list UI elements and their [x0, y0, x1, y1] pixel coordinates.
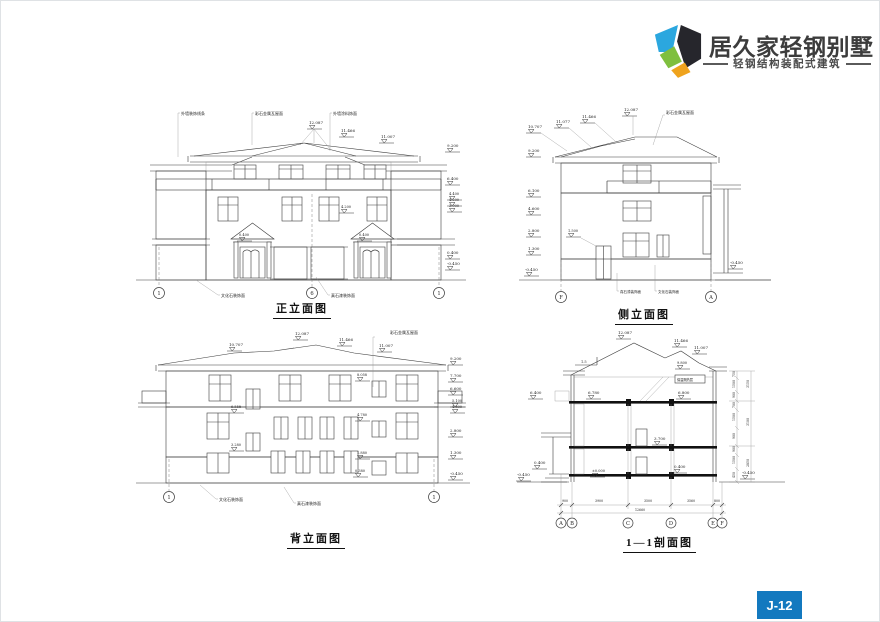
level-label: 11.007 — [694, 345, 708, 350]
dim-label: 3100 — [746, 418, 750, 426]
level-label: -0.450 — [447, 261, 460, 266]
side-elevation-title: 侧立面图 — [615, 306, 673, 325]
level-label: 0.400 — [534, 460, 546, 465]
side-top-note: 彩石金属瓦屋面 — [653, 109, 694, 145]
note-label: 彩石金属瓦屋面 — [666, 109, 694, 115]
level-label: 6.400 — [530, 390, 542, 395]
level-label: 7.700 — [450, 373, 462, 378]
rear-bottom-notes: 文化石装饰面 真石漆装饰面 — [200, 485, 321, 506]
tagline-text: 轻钢结构装配式建筑 — [733, 56, 841, 71]
dim-label: 1500 — [732, 456, 736, 464]
company-tagline: 轻钢结构装配式建筑 — [703, 56, 871, 71]
level-label: 11.007 — [381, 134, 395, 139]
dim-label: 2850 — [746, 459, 750, 467]
level-label: 0.400 — [447, 250, 459, 255]
dim-label: 900 — [732, 446, 736, 452]
dim-label: 900 — [732, 433, 736, 439]
level-label: 1.300 — [450, 450, 462, 455]
level-label: 3.280 — [231, 443, 241, 447]
grid-label: C — [626, 521, 630, 527]
grid-label: E — [711, 521, 715, 527]
level-label: 3.700 — [654, 436, 666, 441]
grid-label: A — [558, 521, 563, 527]
level-label: 0.400 — [239, 233, 249, 237]
level-label: 6.400 — [447, 176, 459, 181]
level-label: 11.007 — [379, 343, 393, 348]
note-label: 保温隔热层 — [677, 377, 693, 382]
level-label: 10.707 — [229, 342, 243, 347]
note-label: 外墙装饰线条 — [181, 110, 205, 116]
side-geometry — [519, 137, 771, 291]
tagline-rule-left — [703, 63, 728, 65]
level-label: 2.800 — [528, 228, 540, 233]
section-right-dims: 750 1500 900 700 1500 900 900 1500 450 3… — [729, 371, 755, 484]
level-label: 6.100 — [528, 188, 540, 193]
rear-elevation-title: 背立面图 — [287, 530, 345, 549]
level-label: 0.400 — [359, 233, 369, 237]
note-label: 真石漆装饰面 — [297, 500, 321, 506]
level-label: 6.780 — [588, 390, 600, 395]
rear-elevation-drawing: 10.707 12.087 11.466 11.007 9.200 7.700 … — [134, 329, 474, 547]
level-label: 1.500 — [568, 229, 578, 233]
level-label: 2.800 — [450, 428, 462, 433]
grid-label: 1 — [167, 495, 170, 501]
level-label: 11.466 — [674, 338, 688, 343]
dim-label: 3900 — [595, 499, 603, 503]
grid-label: F — [720, 521, 724, 527]
page-number-badge: J-12 — [757, 591, 802, 619]
level-label: 12.087 — [624, 107, 638, 112]
level-label: 11.466 — [341, 128, 355, 133]
side-bottom-notes: 真石漆装饰面 文化石装饰面 — [617, 265, 679, 294]
level-label: 10.707 — [528, 124, 542, 129]
level-label: -0.450 — [450, 471, 463, 476]
tagline-rule-right — [846, 63, 871, 65]
level-label: 1.300 — [528, 246, 540, 251]
level-label: ±0.000 — [592, 469, 605, 473]
level-label: 12.087 — [295, 331, 309, 336]
slope-label: 1.5 — [581, 360, 587, 364]
level-label: 9.800 — [677, 361, 687, 365]
grid-label: 1 — [157, 291, 160, 297]
level-label: 4.780 — [357, 413, 367, 417]
level-label: -0.450 — [730, 260, 743, 265]
level-label: 4.200 — [449, 198, 459, 202]
note-label: 文化石装饰面 — [221, 292, 245, 298]
front-elevation-title: 正立面图 — [273, 300, 331, 319]
grid-label: 1 — [432, 495, 435, 501]
grid-label: 6 — [310, 291, 313, 297]
dim-label: 750 — [732, 371, 736, 377]
dim-label: 800 — [714, 499, 720, 503]
dim-label: 1500 — [732, 413, 736, 421]
level-label: 4.400 — [449, 192, 459, 196]
note-label: 文化石装饰面 — [219, 496, 243, 502]
level-label: 11.077 — [556, 119, 570, 124]
level-label: 9.200 — [450, 356, 462, 361]
side-elevation-drawing: 10.707 11.077 11.466 12.087 9.200 6.100 … — [515, 101, 781, 323]
section-drawing: 1.5 保温隔热层 12.087 — [515, 331, 791, 553]
level-label: 4.600 — [528, 206, 540, 211]
level-label: 12.087 — [309, 120, 323, 125]
dim-label: 450 — [732, 472, 736, 478]
note-label: 真石漆装饰面 — [331, 292, 355, 298]
level-label: 5.100 — [452, 399, 462, 403]
section-title: 1—1剖面图 — [623, 534, 696, 553]
level-label: 1.880 — [357, 451, 367, 455]
dim-label: 3150 — [746, 380, 750, 388]
dim-label: 12660 — [635, 508, 645, 512]
front-top-notes: 外墙装饰线条 彩石金属瓦屋面 外墙涂料饰面 — [178, 110, 357, 157]
front-geometry — [136, 143, 466, 287]
grid-label: D — [669, 521, 673, 527]
rear-geometry — [136, 345, 470, 491]
dim-label: 1500 — [732, 380, 736, 388]
level-label: 12.087 — [618, 331, 632, 335]
level-label: -0.450 — [517, 472, 530, 477]
dim-label: 3560 — [687, 499, 695, 503]
grid-label: B — [570, 521, 574, 527]
dim-label: 3500 — [644, 499, 652, 503]
level-label: 3.900 — [449, 204, 459, 208]
section-level-marks: 12.087 11.466 11.007 9.800 6.400 0.400 -… — [516, 331, 755, 481]
level-label: 6.800 — [678, 390, 690, 395]
front-elevation-drawing: 外墙装饰线条 彩石金属瓦屋面 外墙涂料饰面 12.087 11.466 11.0… — [134, 99, 474, 321]
drawing-sheet: 居久家轻钢别墅 轻钢结构装配式建筑 — [0, 0, 880, 622]
section-bottom-dims: 900 3900 3500 3560 800 12660 — [557, 474, 726, 517]
level-label: 9.200 — [528, 148, 540, 153]
level-label: 6.558 — [231, 405, 241, 409]
level-label: 4.200 — [341, 205, 351, 209]
level-label: 9.200 — [447, 143, 459, 148]
dim-label: 900 — [732, 392, 736, 398]
dim-label: 700 — [732, 402, 736, 408]
note-label: 文化石装饰面 — [658, 289, 679, 294]
note-label: 彩石金属瓦屋面 — [255, 110, 283, 116]
section-grid-bubbles: A B C D E F — [556, 518, 727, 528]
level-label: 8.058 — [357, 373, 367, 377]
dim-label: 900 — [562, 499, 568, 503]
level-label: 11.466 — [582, 114, 596, 119]
grid-label: F — [559, 295, 563, 301]
level-label: 11.466 — [339, 337, 353, 342]
front-grid-bubbles: 1 6 1 — [154, 288, 445, 299]
note-label: 真石漆装饰面 — [620, 289, 641, 294]
level-label: 0.400 — [674, 464, 686, 469]
level-label: 4.800 — [452, 405, 462, 409]
level-label: 6.600 — [450, 386, 462, 391]
company-logo-icon — [653, 22, 703, 80]
grid-label: 1 — [437, 291, 440, 297]
note-label: 外墙涂料饰面 — [333, 110, 357, 116]
level-label: 0.380 — [355, 469, 365, 473]
level-label: -0.450 — [742, 470, 755, 475]
note-label: 彩石金属瓦屋面 — [390, 329, 418, 335]
grid-label: A — [708, 295, 713, 301]
section-geometry: 1.5 保温隔热层 — [517, 343, 785, 482]
level-label: -0.450 — [525, 267, 538, 272]
